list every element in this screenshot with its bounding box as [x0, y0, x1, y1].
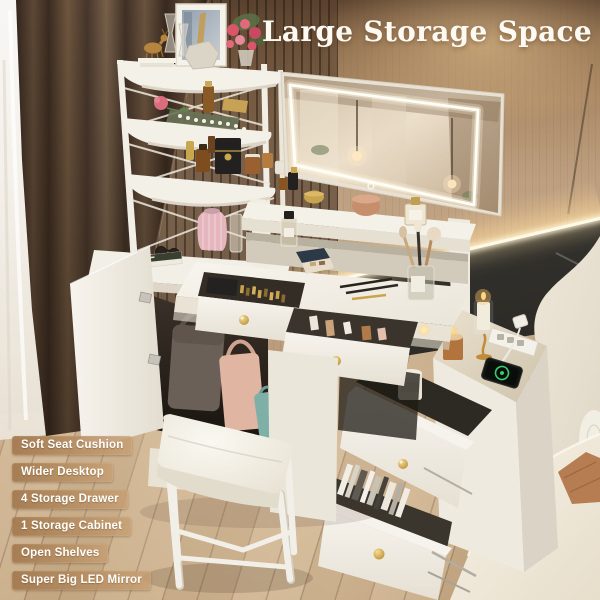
outlet — [517, 340, 524, 346]
feature-badge-soft-seat-cushion: Soft Seat Cushion — [12, 436, 132, 455]
gold-atomizer — [186, 141, 194, 160]
door-hinge — [148, 354, 161, 365]
black-perfume — [288, 172, 298, 190]
pillar-candle — [477, 302, 490, 330]
pink-pleated-vase — [198, 209, 227, 251]
flame — [481, 292, 486, 300]
stool-stretchers — [174, 530, 291, 567]
knob-highlight — [400, 461, 403, 464]
product-image: Large Storage Space Soft Seat Cushion Wi… — [0, 0, 600, 600]
gold-clutch — [222, 98, 248, 113]
gold-deer-figurine — [144, 43, 162, 54]
gold-knob — [398, 459, 408, 469]
feature-badge-open-shelves: Open Shelves — [12, 544, 108, 563]
feature-badge-wider-desktop: Wider Desktop — [12, 463, 113, 482]
feature-badge-super-big-led-mirror: Super Big LED Mirror — [12, 571, 151, 590]
outlet — [507, 337, 514, 343]
door-hinge — [139, 292, 152, 303]
amber-perfume — [196, 149, 210, 172]
gold-bow — [225, 154, 232, 161]
usb-plug — [512, 314, 528, 328]
cream-jar — [245, 157, 260, 174]
feature-badge-1-storage-cabinet: 1 Storage Cabinet — [12, 517, 131, 536]
glass-bottle — [230, 214, 242, 252]
mini-amber-bottle — [279, 178, 287, 190]
slim-bottle — [208, 136, 215, 153]
stacked-books — [138, 58, 176, 63]
gold-knob — [239, 315, 249, 325]
outlet — [497, 334, 504, 340]
feature-badge-list: Soft Seat Cushion Wider Desktop 4 Storag… — [12, 436, 151, 590]
gold-knob — [374, 549, 385, 560]
feature-badge-4-storage-drawer: 4 Storage Drawer — [12, 490, 128, 509]
drawer-organizer — [206, 277, 238, 296]
flower-vase — [238, 50, 254, 66]
perfume-bottle — [203, 86, 214, 112]
headline: Large Storage Space — [262, 15, 592, 48]
cream-jar — [262, 153, 273, 168]
